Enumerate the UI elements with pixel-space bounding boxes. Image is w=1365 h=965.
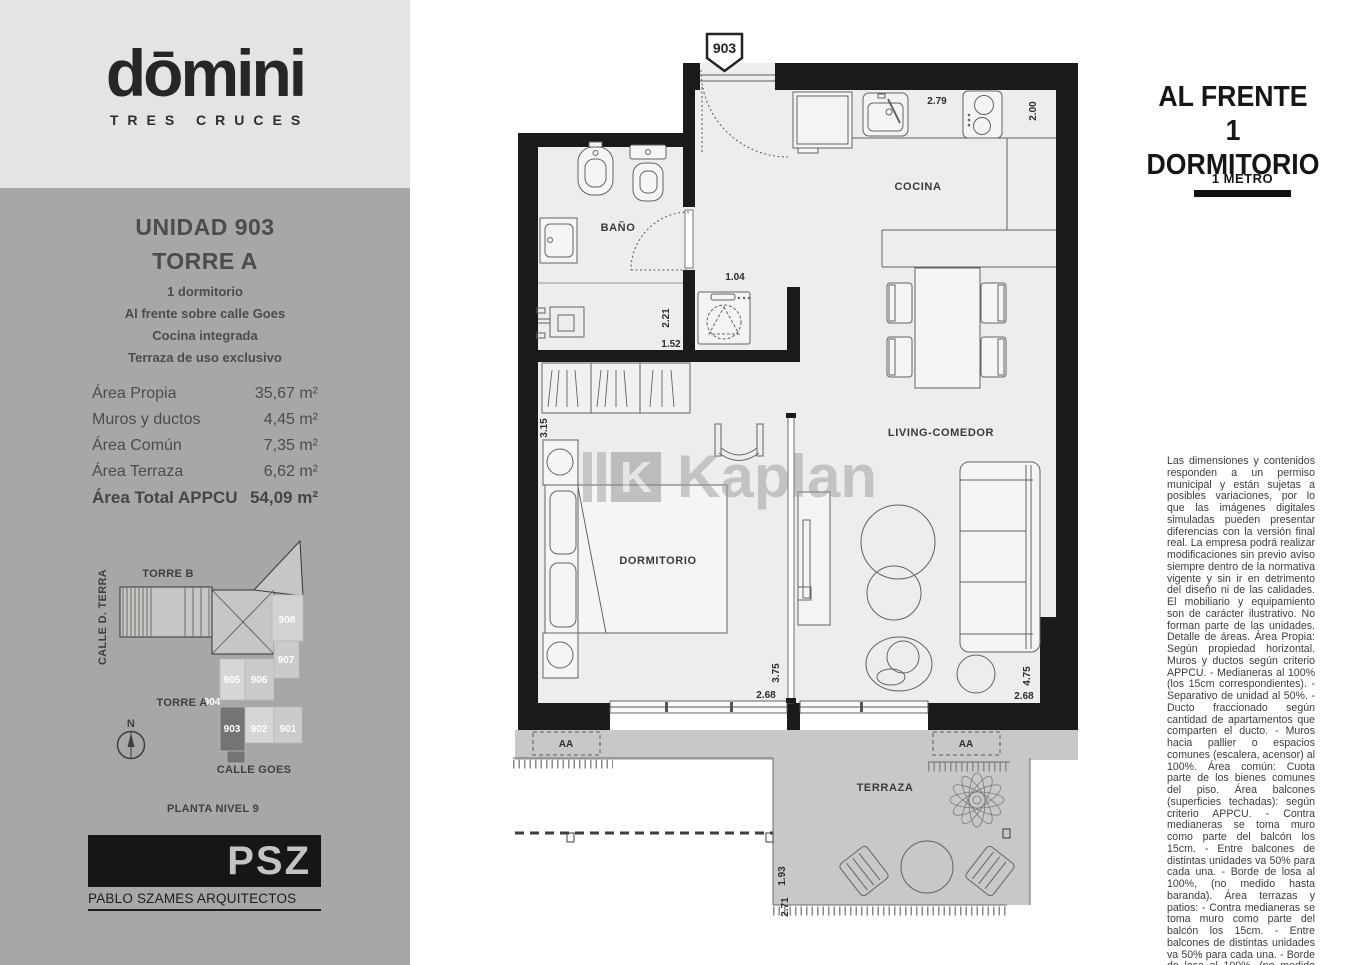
living-label: LIVING-COMEDOR — [888, 427, 994, 439]
washing-machine-icon — [698, 292, 750, 344]
area-value: 35,67 m² — [255, 381, 318, 407]
legal-disclaimer: Las dimensiones y contenidos responden a… — [1167, 456, 1315, 965]
dim-living-win-w: 2.68 — [1014, 691, 1034, 702]
closet-icon — [542, 363, 690, 413]
bidet-tap — [589, 142, 602, 147]
unit-905-label: 905 — [224, 675, 241, 686]
domini-logo: dōmini — [0, 40, 410, 106]
architect-name: PABLO SZAMES ARQUITECTOS — [88, 891, 321, 911]
area-label: Área Terraza — [92, 459, 183, 485]
level-caption: PLANTA NIVEL 9 — [167, 803, 259, 815]
area-value: 54,09 m² — [250, 485, 318, 511]
area-row: Área Terraza6,62 m² — [92, 459, 318, 485]
torre-b-label: TORRE B — [142, 568, 193, 580]
unit-901-label: 901 — [280, 724, 297, 735]
dim-cocina-depth: 2.00 — [1028, 101, 1039, 121]
sidebar: dōmini TRES CRUCES UNIDAD 903 TORRE A 1 … — [0, 0, 410, 965]
kaplan-logo-icon: K — [583, 446, 667, 508]
area-row: Muros y ductos4,45 m² — [92, 407, 318, 433]
sofa-icon — [960, 462, 1040, 652]
area-value: 7,35 m² — [264, 433, 318, 459]
windows — [610, 701, 928, 713]
area-label: Área Propia — [92, 381, 177, 407]
street-bottom-label: CALLE GOES — [217, 764, 292, 776]
terrace-label: TERRAZA — [857, 782, 914, 794]
dim-living-win-h: 4.75 — [1022, 666, 1033, 686]
kitchen-sink-icon — [863, 93, 908, 136]
tv-unit-icon — [798, 492, 830, 625]
scale-bar — [1194, 190, 1291, 197]
brand-header: dōmini TRES CRUCES — [0, 0, 410, 188]
tower-title: TORRE A — [0, 248, 410, 275]
dim-dorm-win-w: 2.68 — [756, 690, 776, 701]
unit-902-label: 902 — [251, 724, 268, 735]
dim-dorm-win-h: 3.75 — [771, 663, 782, 683]
dim-cocina-width: 2.79 — [927, 96, 947, 107]
area-label: Muros y ductos — [92, 407, 200, 433]
scale-indicator: 1 METRO — [1194, 171, 1291, 197]
fridge-icon — [793, 92, 852, 153]
dim-lavadero-h: 2.21 — [661, 308, 672, 328]
dim-hall: 1.04 — [725, 272, 745, 283]
aa-label: AA — [959, 739, 973, 750]
dim-terraza-w: 2.71 — [780, 897, 791, 917]
unit-908-label: 908 — [279, 615, 296, 626]
area-table: Área Propia35,67 m² Muros y ductos4,45 m… — [92, 381, 318, 511]
bedroom-label: DORMITORIO — [619, 555, 696, 567]
kaplan-watermark-text: Kaplan — [677, 442, 877, 511]
dim-dormitorio-h: 3.15 — [539, 418, 550, 438]
area-row-total: Área Total APPCU54,09 m² — [92, 485, 318, 511]
feature-line: 1 dormitorio — [0, 281, 410, 303]
bidet-icon — [578, 147, 613, 195]
bathroom-label: BAÑO — [601, 221, 636, 234]
dim-terraza-h: 1.93 — [777, 866, 788, 886]
psz-logo-box: PSZ — [88, 835, 321, 887]
north-label: N — [127, 718, 135, 730]
orientation-line1: AL FRENTE — [1136, 80, 1329, 114]
unit-903-label: 903 — [224, 724, 241, 735]
toilet-icon — [630, 145, 666, 159]
unit-features: 1 dormitorio Al frente sobre calle Goes … — [0, 281, 410, 369]
torre-a-label: TORRE A — [157, 697, 208, 709]
unit-907-label: 907 — [278, 655, 295, 666]
feature-line: Cocina integrada — [0, 325, 410, 347]
key-plan: TORRE B CALLE D. TERRA — [90, 532, 320, 822]
aa-label: AA — [559, 739, 573, 750]
feature-line: Al frente sobre calle Goes — [0, 303, 410, 325]
compass-icon — [118, 732, 145, 759]
floorplan-sheet: dōmini TRES CRUCES UNIDAD 903 TORRE A 1 … — [0, 0, 1365, 965]
orientation-header: AL FRENTE 1 DORMITORIO — [1136, 80, 1329, 182]
area-value: 6,62 m² — [264, 459, 318, 485]
area-value: 4,45 m² — [264, 407, 318, 433]
architect-logo: PSZ PABLO SZAMES ARQUITECTOS — [88, 835, 321, 911]
feature-line: Terraza de uso exclusivo — [0, 347, 410, 369]
stove-icon — [963, 91, 1002, 138]
domini-logo-subtitle: TRES CRUCES — [0, 112, 410, 128]
area-row: Área Común7,35 m² — [92, 433, 318, 459]
kaplan-k: K — [620, 453, 652, 502]
unit-marker-number: 903 — [713, 40, 737, 56]
dim-lavadero-w: 1.52 — [661, 339, 681, 350]
unit-906-label: 906 — [251, 675, 268, 686]
kaplan-watermark: K Kaplan — [583, 442, 877, 511]
area-label: Área Común — [92, 433, 182, 459]
scale-label: 1 METRO — [1194, 171, 1291, 186]
unit-title: UNIDAD 903 — [0, 214, 410, 241]
psz-initials: PSZ — [227, 839, 311, 884]
kitchen-label: COCINA — [895, 181, 942, 193]
area-row: Área Propia35,67 m² — [92, 381, 318, 407]
street-left-label: CALLE D. TERRA — [97, 569, 109, 665]
area-label: Área Total APPCU — [92, 485, 237, 511]
